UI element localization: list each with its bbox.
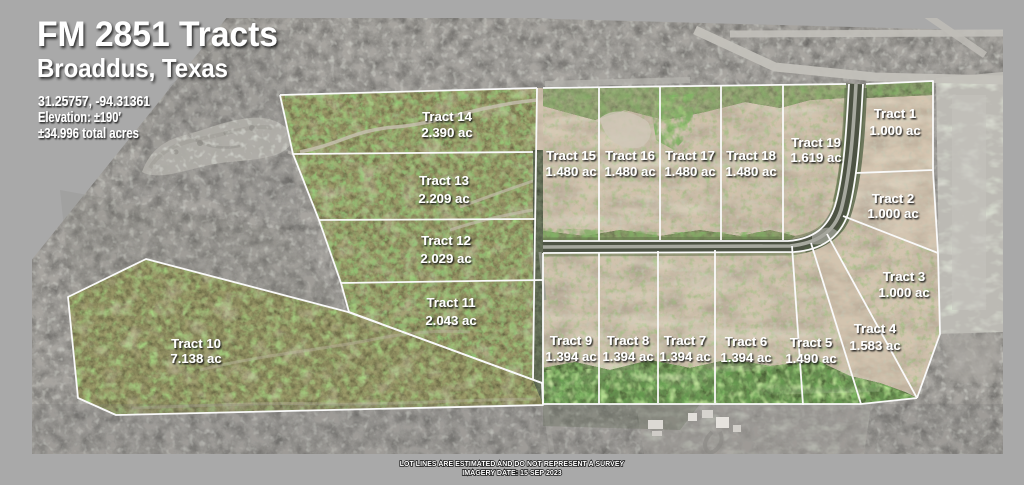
svg-text:Tract 14: Tract 14 [422,109,473,124]
svg-text:2.043 ac: 2.043 ac [425,313,476,328]
svg-text:±34.996 total acres: ±34.996 total acres [38,126,139,142]
svg-text:1.000 ac: 1.000 ac [869,123,920,138]
svg-text:Broaddus, Texas: Broaddus, Texas [37,53,228,83]
svg-text:1.480 ac: 1.480 ac [725,164,776,179]
svg-text:Tract 17: Tract 17 [665,148,715,163]
svg-text:Tract 10: Tract 10 [171,336,221,351]
svg-text:Tract 8: Tract 8 [607,333,650,348]
svg-text:1.394 ac: 1.394 ac [602,349,653,364]
svg-text:IMAGERY DATE: 15 SEP 2023: IMAGERY DATE: 15 SEP 2023 [462,469,562,477]
svg-text:1.480 ac: 1.480 ac [545,164,596,179]
svg-text:1.480 ac: 1.480 ac [664,164,715,179]
svg-text:7.138 ac: 7.138 ac [170,351,221,366]
svg-text:1.480 ac: 1.480 ac [604,164,655,179]
svg-text:2.390 ac: 2.390 ac [421,125,472,140]
svg-text:1.490 ac: 1.490 ac [785,351,836,366]
svg-text:1.394 ac: 1.394 ac [720,350,771,365]
svg-text:Tract 9: Tract 9 [550,333,593,348]
svg-text:Tract 6: Tract 6 [725,334,768,349]
svg-text:Tract 15: Tract 15 [546,148,596,163]
svg-text:Tract 19: Tract 19 [791,135,841,150]
svg-text:31.25757, -94.31361: 31.25757, -94.31361 [38,94,150,110]
svg-text:Tract 1: Tract 1 [874,106,917,121]
svg-text:Tract 18: Tract 18 [726,148,776,163]
svg-text:Tract 12: Tract 12 [421,233,471,248]
svg-text:Tract 2: Tract 2 [872,191,915,206]
svg-text:1.000 ac: 1.000 ac [867,206,918,221]
svg-text:Tract 16: Tract 16 [605,148,655,163]
svg-text:1.619 ac: 1.619 ac [790,150,841,165]
svg-text:1.000 ac: 1.000 ac [878,285,929,300]
svg-text:Tract 13: Tract 13 [419,173,469,188]
svg-text:Tract 7: Tract 7 [664,333,707,348]
svg-text:Tract 11: Tract 11 [426,295,475,310]
svg-text:1.394 ac: 1.394 ac [659,349,710,364]
svg-text:Tract 3: Tract 3 [883,269,926,284]
svg-text:2.029 ac: 2.029 ac [420,251,471,266]
svg-text:Tract 5: Tract 5 [790,335,833,350]
svg-text:2.209 ac: 2.209 ac [418,191,469,206]
svg-text:LOT LINES ARE ESTIMATED AND DO: LOT LINES ARE ESTIMATED AND DO NOT REPRE… [400,461,625,468]
svg-text:1.394 ac: 1.394 ac [545,349,596,364]
svg-text:Elevation: ±190′: Elevation: ±190′ [38,110,121,126]
svg-text:Tract 4: Tract 4 [854,321,897,336]
svg-text:1.583 ac: 1.583 ac [849,338,900,353]
svg-text:FM 2851 Tracts: FM 2851 Tracts [37,15,278,54]
